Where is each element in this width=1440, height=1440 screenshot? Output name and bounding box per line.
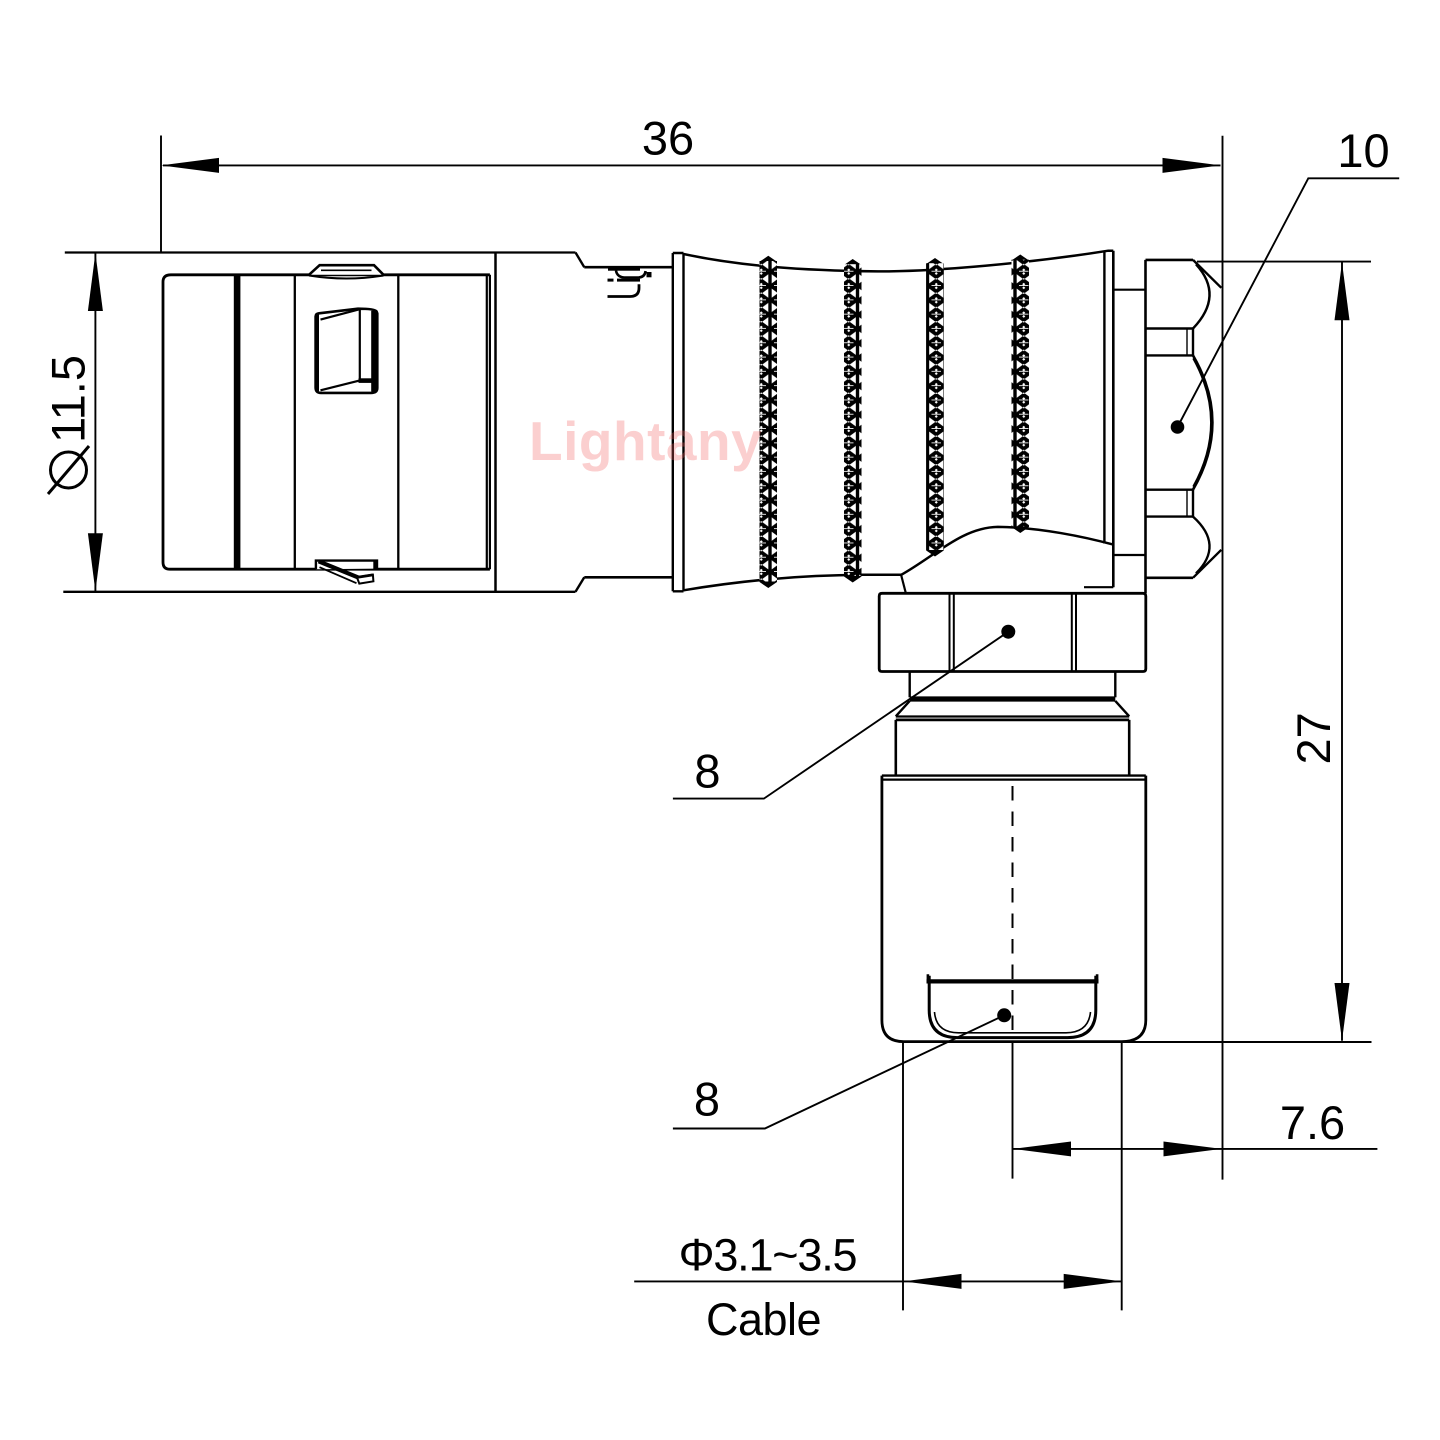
svg-text:8: 8 <box>694 1073 720 1126</box>
svg-text:Φ3.1~3.5: Φ3.1~3.5 <box>679 1230 857 1281</box>
svg-text:11.5: 11.5 <box>42 355 95 443</box>
svg-text:7.6: 7.6 <box>1280 1096 1345 1149</box>
svg-text:Lightany: Lightany <box>529 410 762 472</box>
svg-text:36: 36 <box>642 111 694 164</box>
svg-text:8: 8 <box>694 744 720 797</box>
svg-text:27: 27 <box>1287 712 1340 764</box>
svg-text:Cable: Cable <box>706 1294 821 1345</box>
svg-text:10: 10 <box>1337 124 1389 177</box>
